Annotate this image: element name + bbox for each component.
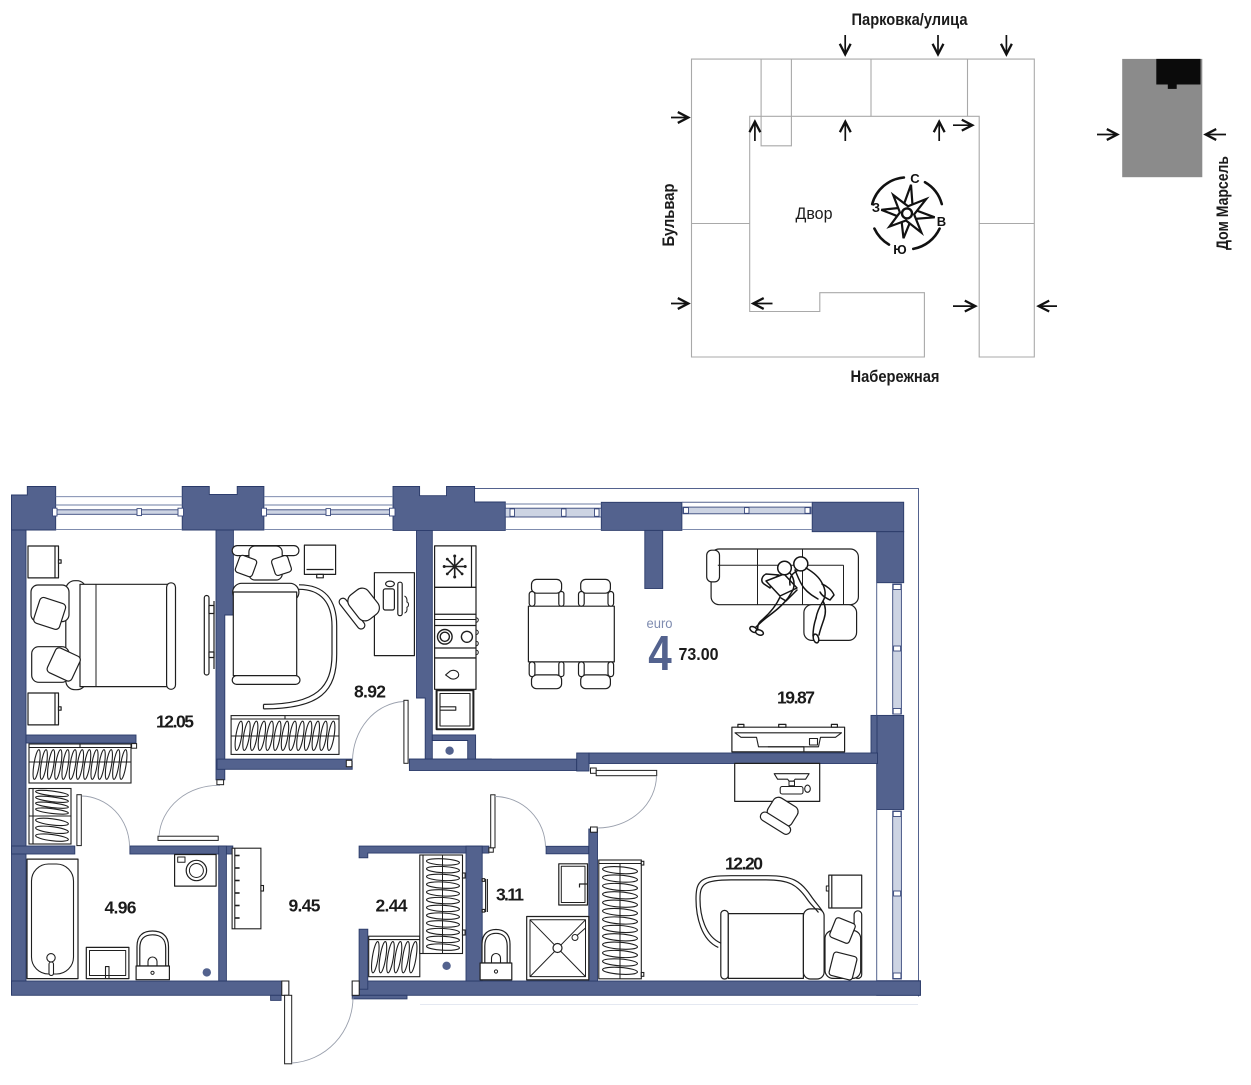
svg-text:3.11: 3.11 [496,885,524,905]
svg-text:З: З [872,200,880,215]
svg-text:4.96: 4.96 [105,898,137,918]
svg-text:Ю: Ю [893,242,906,257]
svg-text:2.44: 2.44 [376,896,408,916]
svg-text:Бульвар: Бульвар [659,184,678,247]
svg-text:19.87: 19.87 [777,688,815,708]
svg-text:Набережная: Набережная [851,367,940,386]
svg-text:Дом Марсель: Дом Марсель [1213,156,1232,250]
svg-text:12.20: 12.20 [725,854,763,874]
svg-text:Двор: Двор [796,204,833,223]
svg-text:8.92: 8.92 [354,682,386,702]
svg-text:73.00: 73.00 [679,644,719,664]
svg-text:4: 4 [648,627,672,681]
svg-text:Парковка/улица: Парковка/улица [852,10,968,29]
svg-text:9.45: 9.45 [289,896,321,916]
svg-text:В: В [937,214,946,229]
svg-text:12.05: 12.05 [156,712,194,732]
svg-text:С: С [910,171,920,186]
